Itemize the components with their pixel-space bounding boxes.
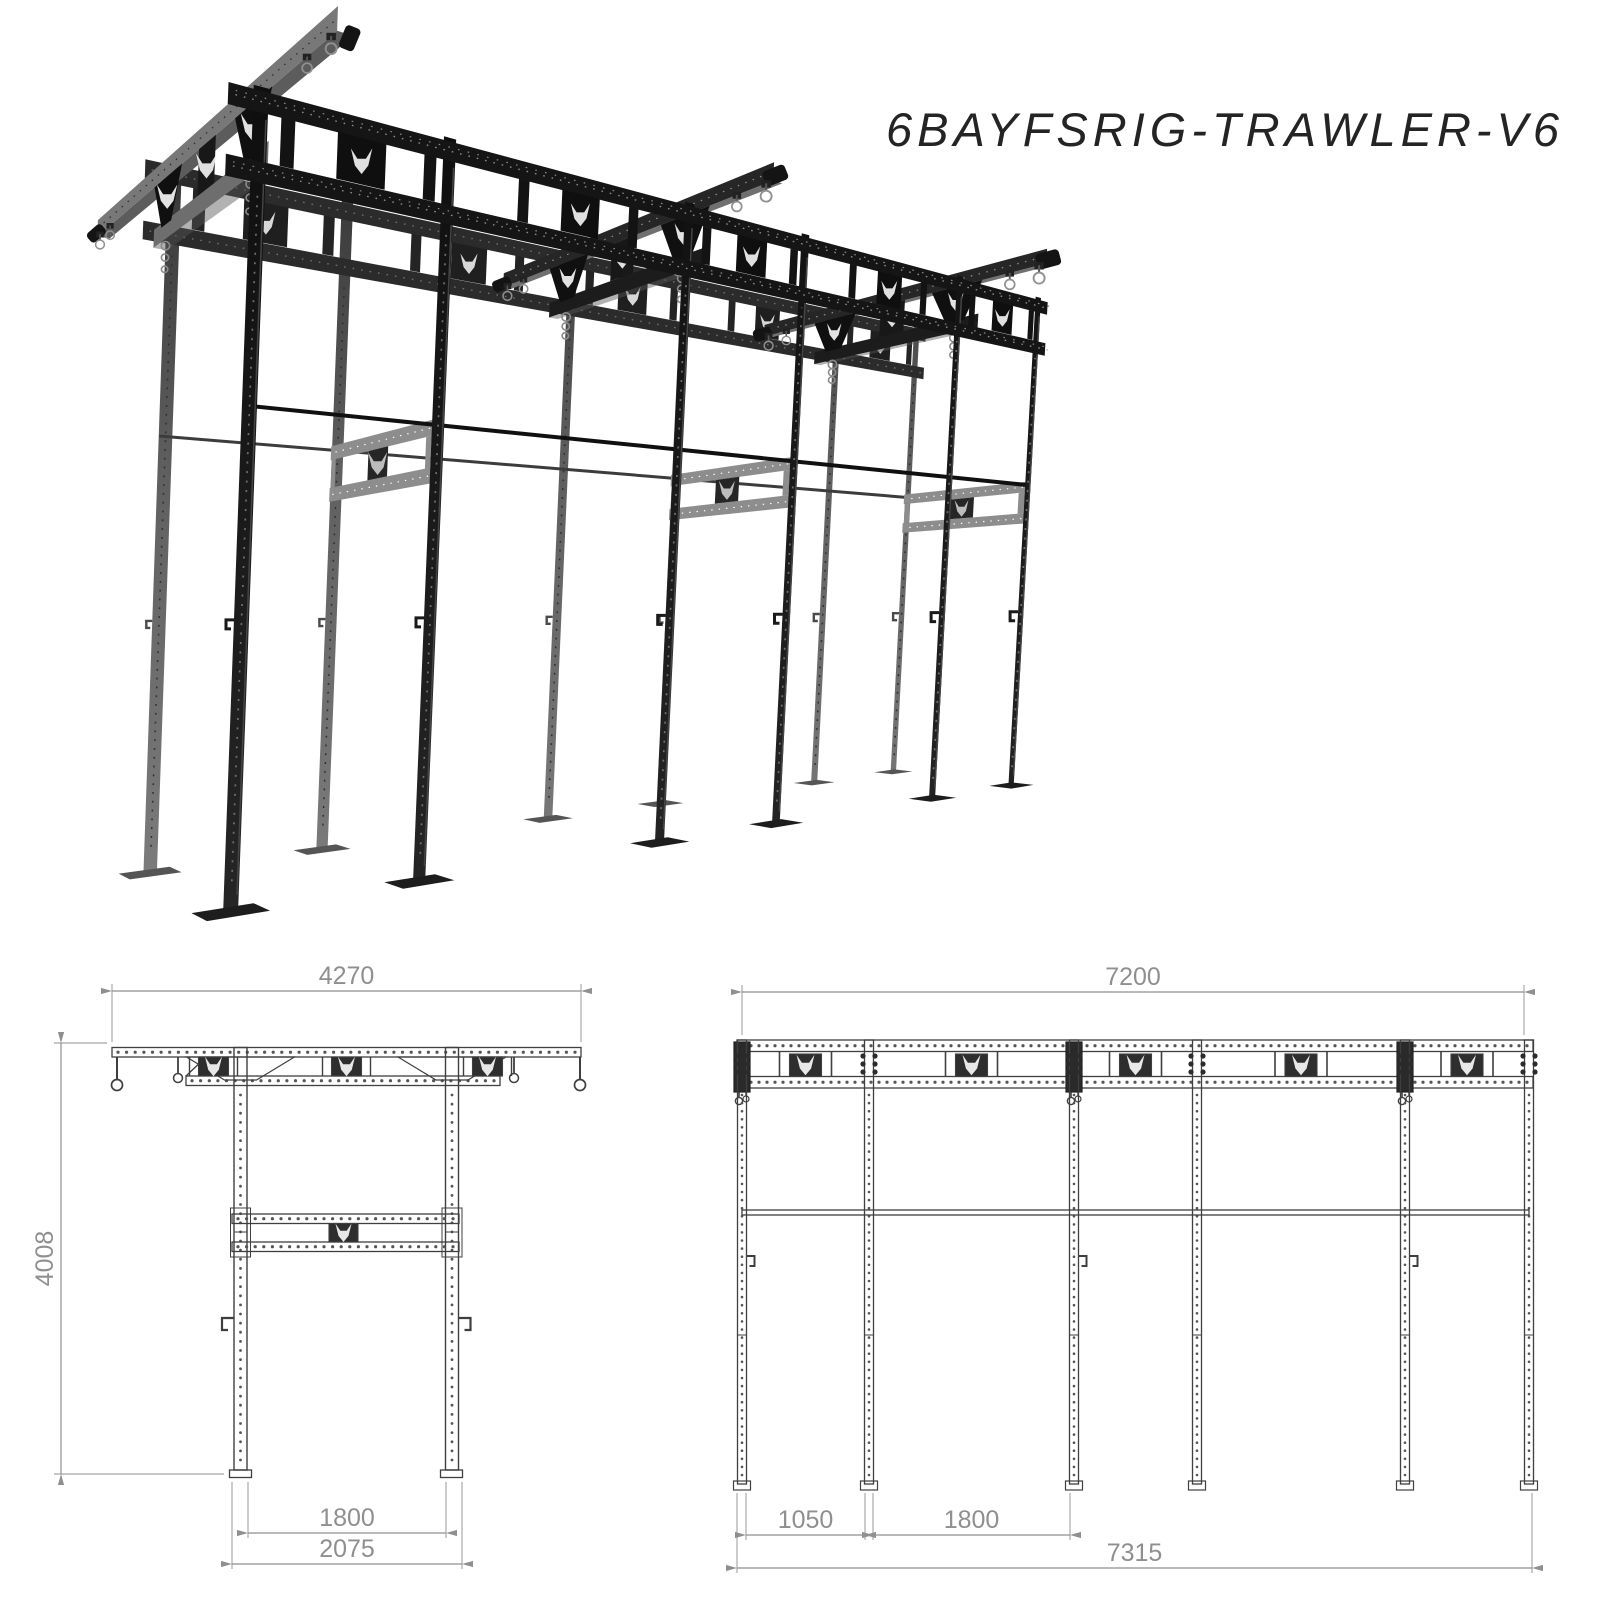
svg-text:1050: 1050 <box>778 1506 834 1534</box>
svg-text:7315: 7315 <box>1107 1539 1163 1567</box>
svg-text:2075: 2075 <box>319 1535 375 1563</box>
svg-text:1800: 1800 <box>319 1504 375 1532</box>
svg-text:4008: 4008 <box>31 1231 59 1287</box>
svg-text:4270: 4270 <box>319 962 375 990</box>
svg-text:7200: 7200 <box>1105 963 1161 991</box>
svg-text:1800: 1800 <box>944 1506 1000 1534</box>
